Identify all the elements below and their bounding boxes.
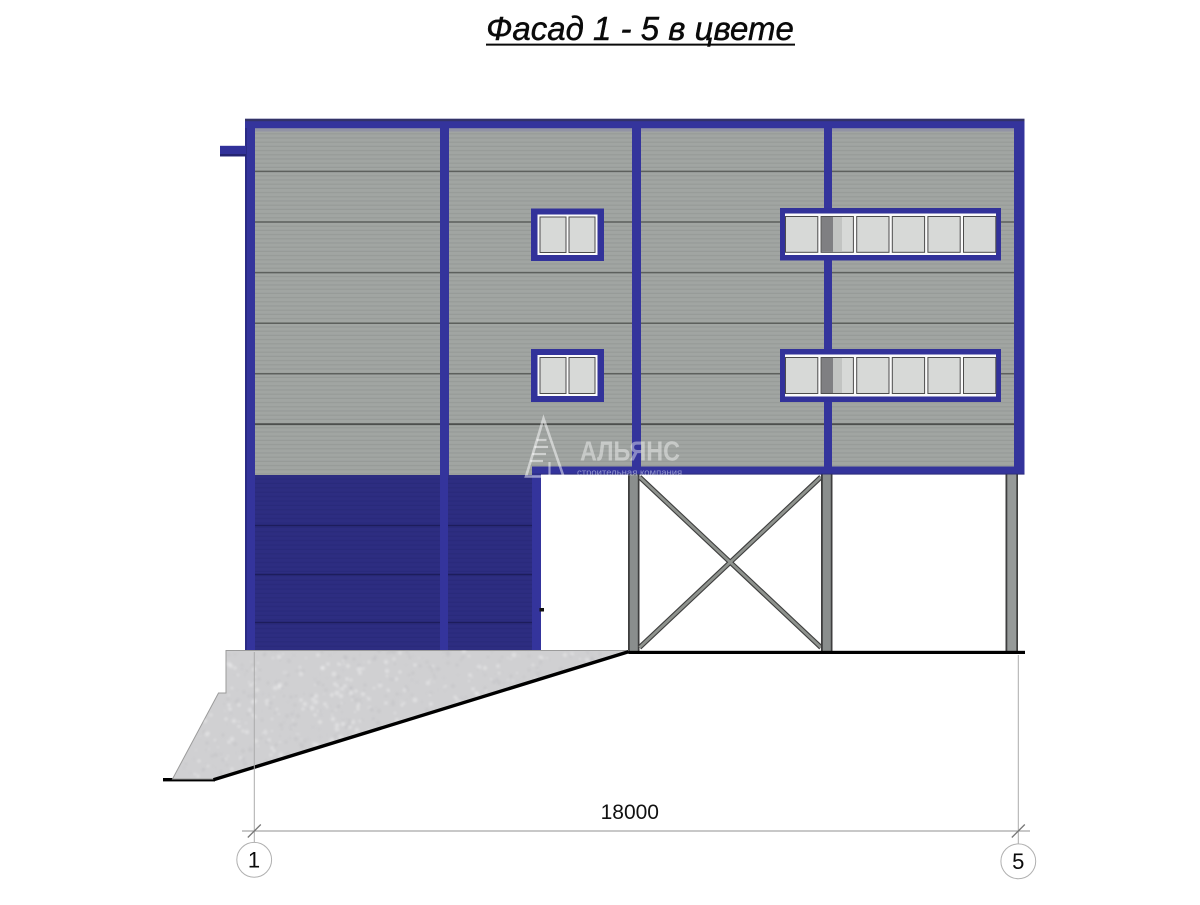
svg-text:18000: 18000 [601, 801, 659, 824]
svg-text:строительная компания: строительная компания [577, 468, 682, 479]
svg-text:Фасад 1 - 5 в цвете: Фасад 1 - 5 в цвете [486, 10, 794, 47]
svg-text:АЛЬЯНС: АЛЬЯНС [580, 436, 680, 467]
svg-text:5: 5 [1012, 849, 1024, 874]
svg-text:1: 1 [248, 848, 260, 873]
